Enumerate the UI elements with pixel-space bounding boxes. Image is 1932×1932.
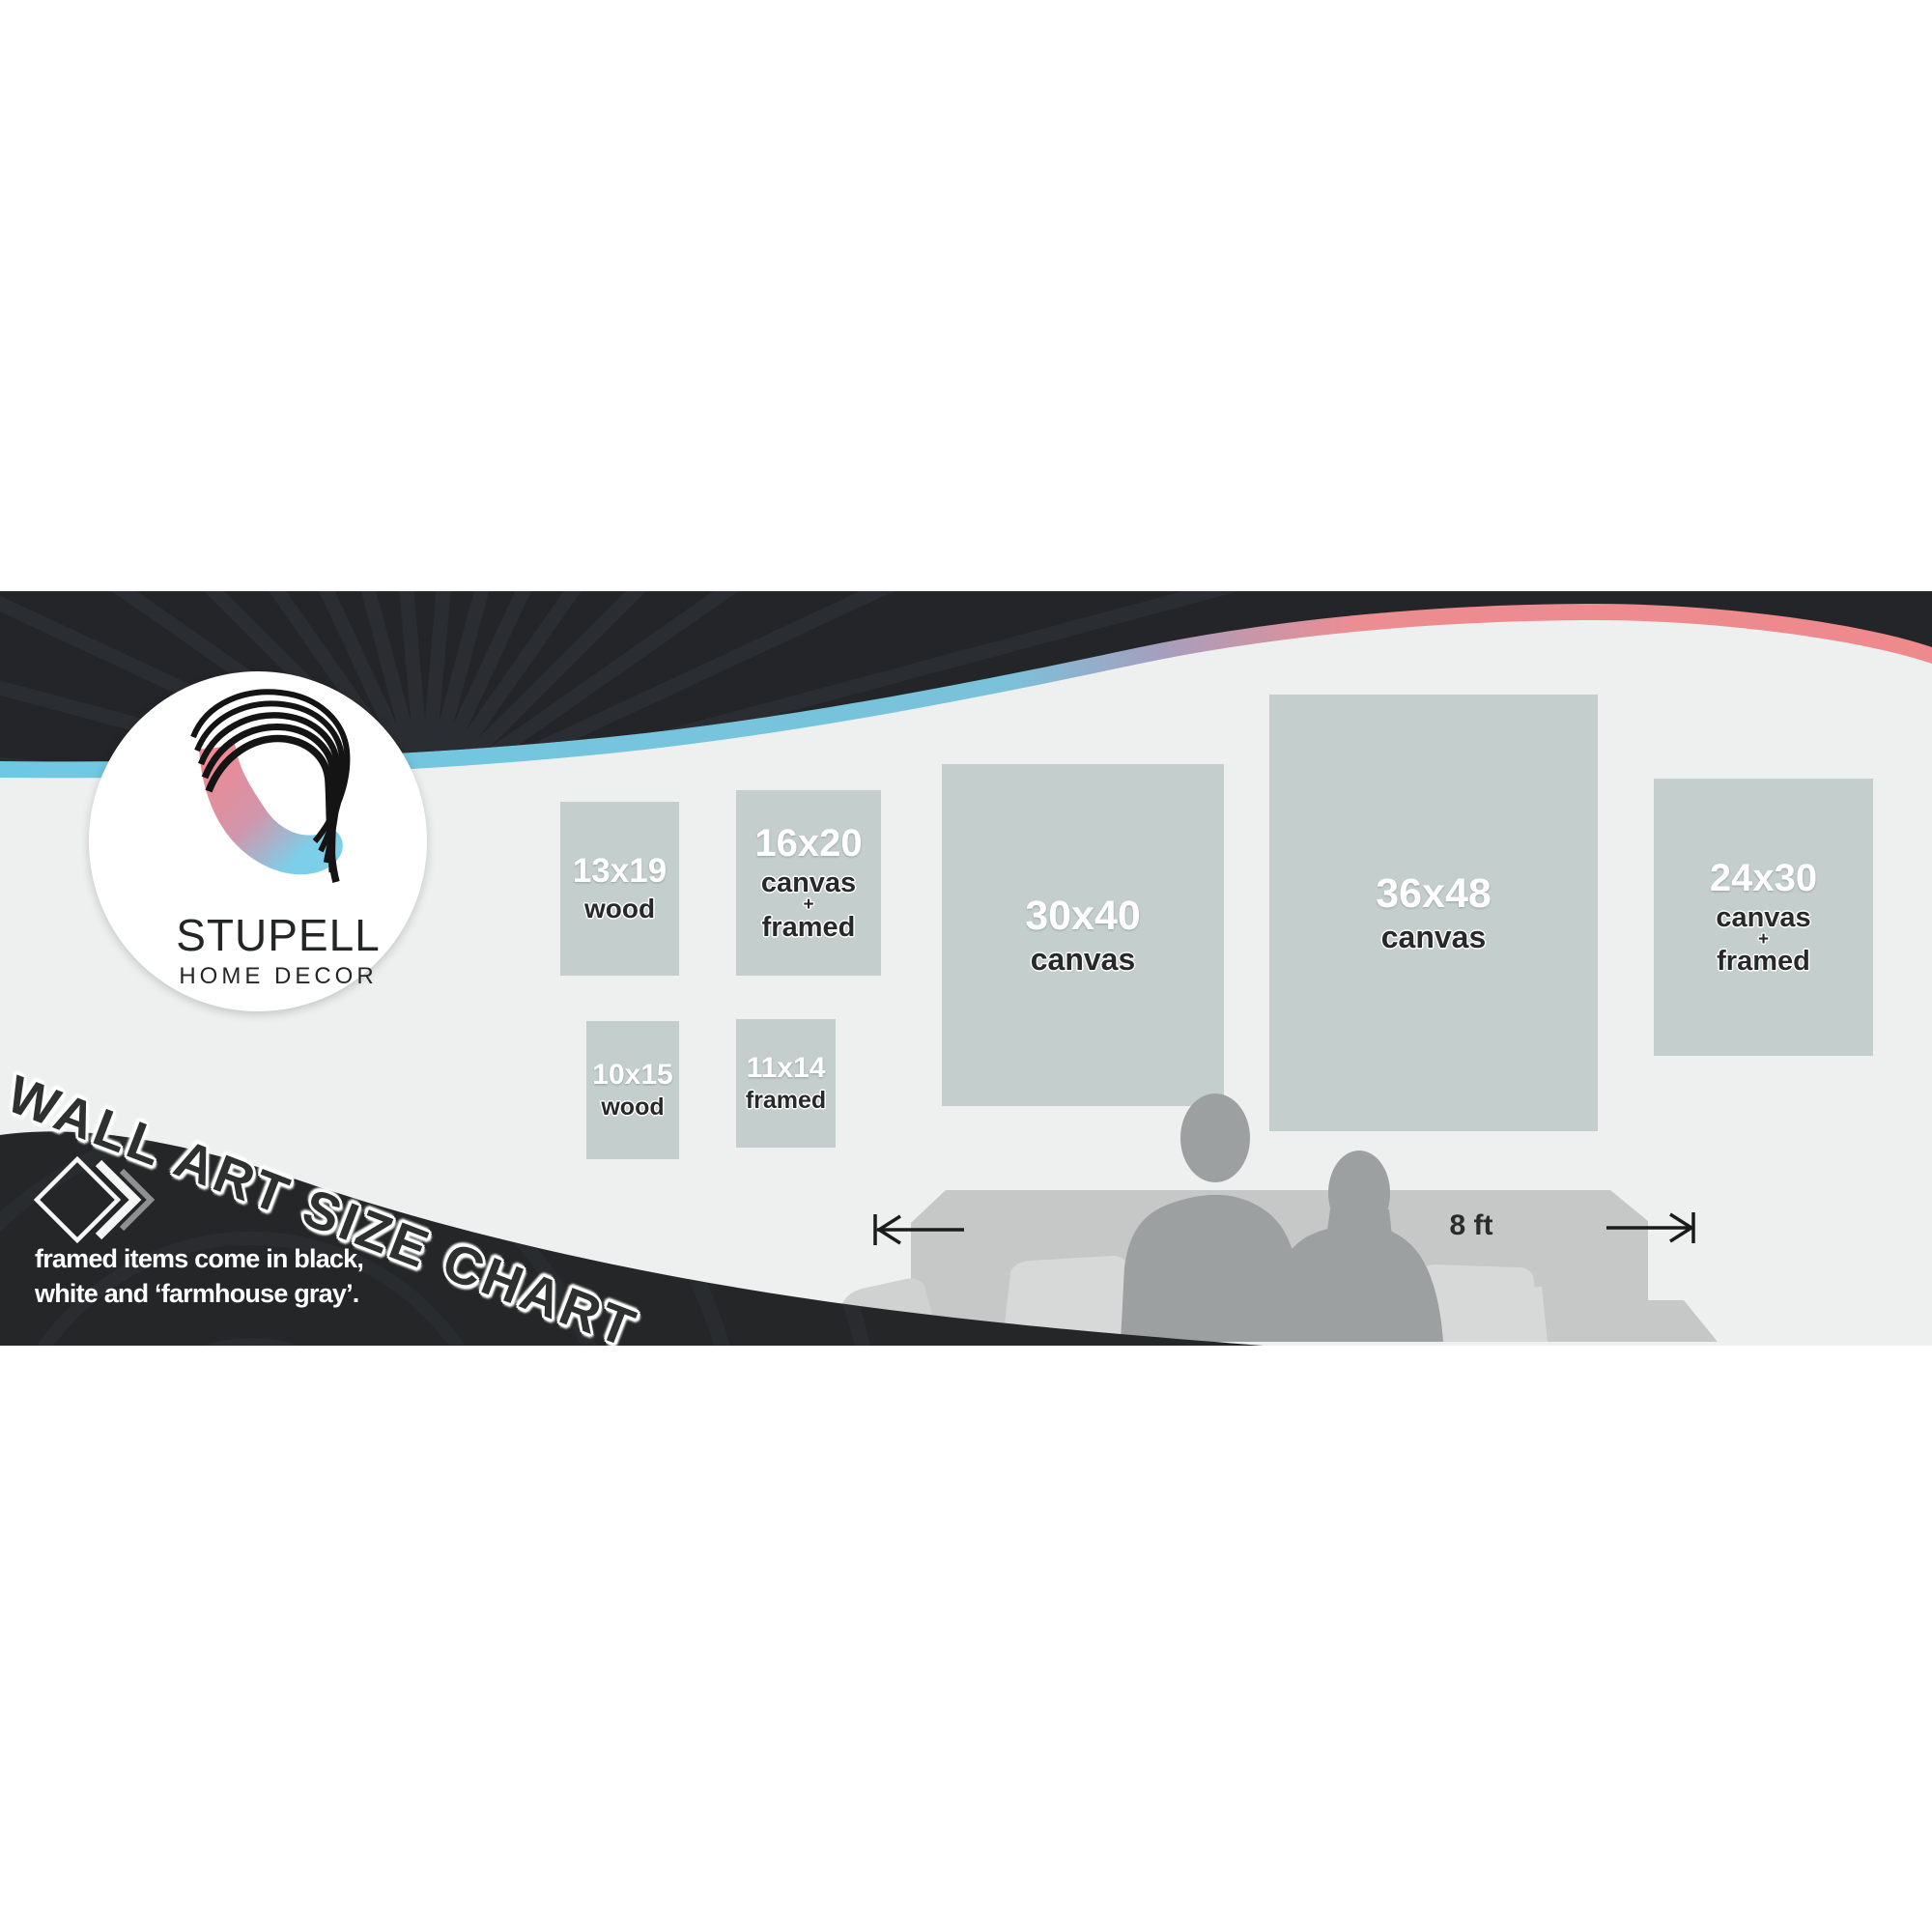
width-measure <box>875 1212 1693 1245</box>
blob-ripple-texture <box>0 862 879 1346</box>
material-label: canvas <box>1031 943 1136 977</box>
material-label: wood <box>601 1094 664 1121</box>
double-chevron-right-icon <box>122 1171 151 1229</box>
material-label: wood <box>584 895 655 923</box>
size-box-10x15: 10x15 wood <box>586 1021 679 1159</box>
wave-accent-strip <box>0 591 1932 778</box>
plus-label: + <box>1758 933 1769 947</box>
banner-artwork <box>0 591 1932 1346</box>
arrow-left-to-bar-icon <box>875 1214 964 1245</box>
size-label: 10x15 <box>592 1060 672 1091</box>
size-label: 13x19 <box>573 854 667 890</box>
material-label: canvas <box>761 868 856 898</box>
bottom-wave-blob <box>0 1131 1264 1346</box>
couch-illustration <box>831 1190 1718 1342</box>
note-text-line1: framed items come in black, <box>35 1244 363 1274</box>
couch-cushion-left <box>1003 1256 1130 1342</box>
top-wave-band <box>0 591 1932 761</box>
material-label: canvas <box>1716 903 1810 933</box>
double-chevron-right-icon <box>99 1163 135 1236</box>
stupell-logo-badge: STUPELL HOME DECOR <box>89 671 427 1011</box>
material-label: framed <box>762 913 856 943</box>
brand-tagline: HOME DECOR <box>108 963 448 990</box>
brand-swirl-icon <box>189 687 363 914</box>
woman-silhouette <box>1273 1151 1443 1342</box>
material-label: canvas <box>1381 921 1487 954</box>
size-box-30x40: 30x40 canvas <box>942 764 1224 1106</box>
size-label: 24x30 <box>1710 858 1817 898</box>
size-chart-banner: 13x19 wood 16x20 canvas + framed 30x40 c… <box>0 591 1932 1346</box>
size-box-13x19: 13x19 wood <box>560 802 679 976</box>
size-label: 30x40 <box>1025 895 1141 938</box>
scale-label: 8 ft <box>1428 1209 1515 1242</box>
band-ray-texture <box>0 591 1932 945</box>
size-label: 16x20 <box>754 823 862 864</box>
couch-cushion-end <box>1503 1287 1548 1342</box>
size-box-16x20: 16x20 canvas + framed <box>736 790 881 976</box>
page: { "banner": { "title": "WALL ART SIZE CH… <box>0 0 1932 1932</box>
size-label: 11x14 <box>747 1053 826 1084</box>
man-silhouette <box>1121 1094 1305 1342</box>
material-label: framed <box>1717 947 1810 977</box>
plus-label: + <box>803 898 813 912</box>
diamond-outline-icon <box>37 1159 118 1240</box>
couch-armrest-left <box>831 1278 939 1342</box>
size-box-24x30: 24x30 canvas + framed <box>1654 779 1873 1056</box>
size-box-11x14: 11x14 framed <box>736 1019 836 1148</box>
diamond-icon <box>37 1159 151 1240</box>
brand-name: STUPELL <box>108 909 448 961</box>
note-text-line2: white and ‘farmhouse gray’. <box>35 1279 358 1309</box>
material-label: framed <box>746 1088 826 1114</box>
couch-cushion-right <box>1412 1264 1538 1342</box>
size-label: 36x48 <box>1376 872 1492 916</box>
size-box-36x48: 36x48 canvas <box>1269 695 1598 1131</box>
people-silhouette <box>1121 1094 1443 1342</box>
page-title: WALL ART SIZE CHART <box>0 1063 646 1346</box>
arrow-right-to-bar-icon <box>1606 1212 1693 1243</box>
